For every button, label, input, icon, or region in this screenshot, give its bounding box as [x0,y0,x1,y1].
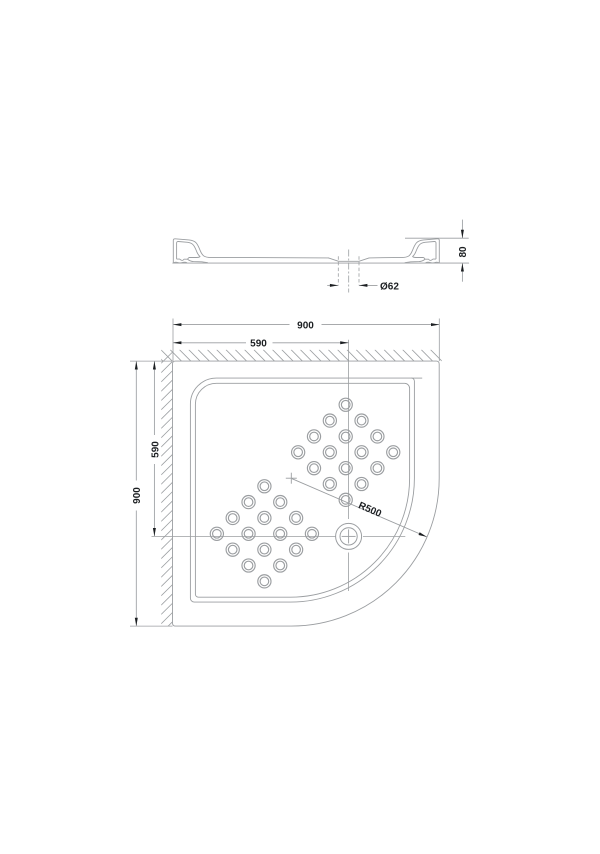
svg-text:590: 590 [150,441,161,458]
svg-text:900: 900 [132,487,143,504]
svg-text:590: 590 [250,339,267,350]
svg-text:Ø62: Ø62 [380,282,399,293]
svg-text:900: 900 [297,320,314,331]
svg-text:80: 80 [458,246,469,258]
